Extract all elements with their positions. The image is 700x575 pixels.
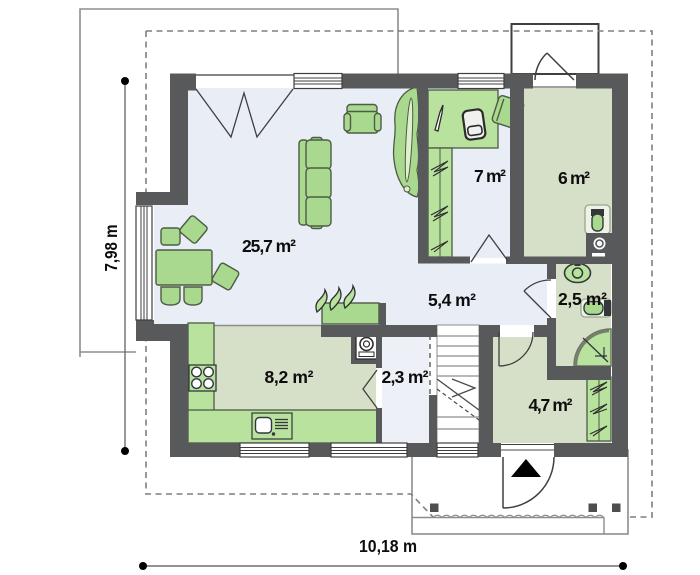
svg-text:8,2 m²: 8,2 m² <box>265 367 314 387</box>
svg-text:10,18 m: 10,18 m <box>359 536 417 556</box>
svg-text:25,7 m²: 25,7 m² <box>242 236 296 256</box>
svg-text:7 m²: 7 m² <box>474 166 506 186</box>
svg-text:2,3 m²: 2,3 m² <box>382 367 429 387</box>
svg-text:2,5 m²: 2,5 m² <box>558 289 607 309</box>
svg-text:4,7 m²: 4,7 m² <box>529 395 573 415</box>
svg-text:5,4 m²: 5,4 m² <box>428 290 476 310</box>
svg-text:7,98 m: 7,98 m <box>101 225 121 272</box>
svg-text:6 m²: 6 m² <box>558 168 590 188</box>
